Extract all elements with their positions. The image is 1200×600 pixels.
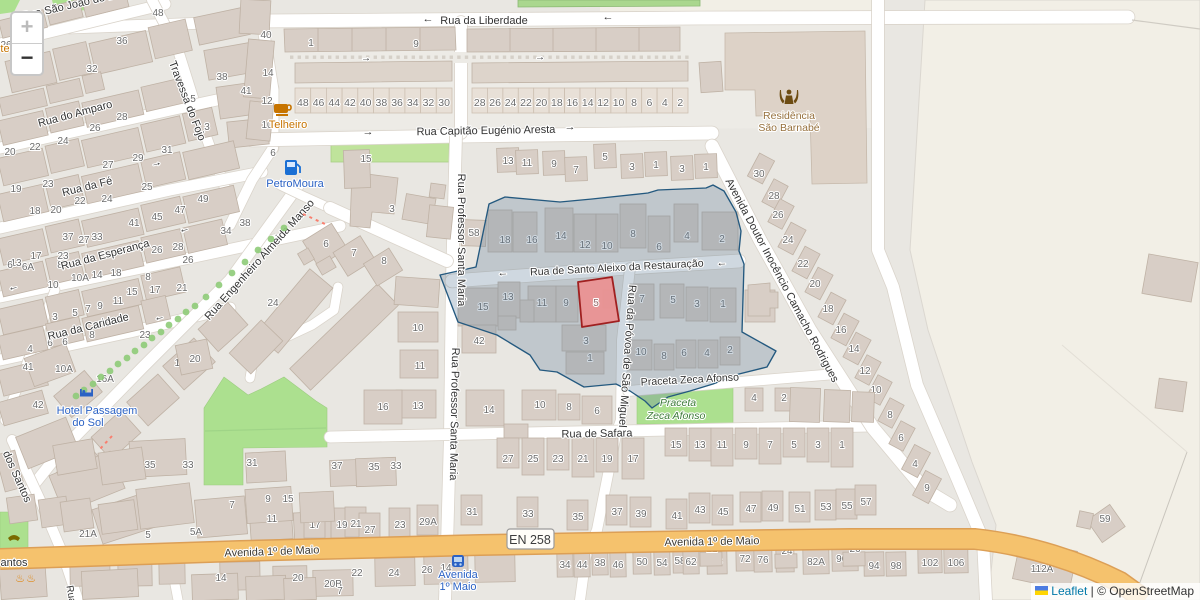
svg-text:te: te <box>0 43 9 55</box>
svg-text:29A: 29A <box>419 517 437 528</box>
svg-text:20: 20 <box>189 354 201 365</box>
svg-text:18: 18 <box>110 268 122 279</box>
svg-text:18: 18 <box>551 97 563 109</box>
svg-text:26: 26 <box>182 255 194 266</box>
svg-text:15: 15 <box>126 287 138 298</box>
svg-text:28: 28 <box>768 191 780 202</box>
svg-text:32: 32 <box>423 97 435 109</box>
svg-text:5: 5 <box>791 440 797 451</box>
svg-text:Praceta: Praceta <box>660 397 696 409</box>
svg-text:20: 20 <box>809 279 821 290</box>
svg-text:43: 43 <box>694 505 706 516</box>
svg-text:36: 36 <box>116 36 128 47</box>
svg-text:16: 16 <box>835 325 847 336</box>
svg-text:21: 21 <box>577 454 589 465</box>
svg-text:33: 33 <box>522 509 534 520</box>
svg-text:8: 8 <box>631 97 637 109</box>
svg-text:6: 6 <box>898 433 904 444</box>
svg-text:3: 3 <box>815 440 821 451</box>
svg-text:Telheiro: Telheiro <box>269 119 308 131</box>
svg-text:8: 8 <box>381 256 387 267</box>
svg-text:2: 2 <box>781 393 787 404</box>
svg-text:←: ← <box>423 13 434 25</box>
svg-text:44: 44 <box>576 560 588 571</box>
svg-text:53: 53 <box>820 502 832 513</box>
svg-text:11: 11 <box>415 361 426 372</box>
svg-text:33: 33 <box>182 460 194 471</box>
svg-text:48: 48 <box>152 8 164 19</box>
svg-text:47: 47 <box>745 504 757 515</box>
svg-text:11: 11 <box>267 514 278 525</box>
svg-text:5: 5 <box>593 298 599 309</box>
svg-text:38: 38 <box>216 72 228 83</box>
svg-text:5A: 5A <box>190 527 203 538</box>
svg-text:7: 7 <box>337 586 343 597</box>
svg-text:26: 26 <box>489 97 501 109</box>
svg-text:46: 46 <box>612 560 624 571</box>
svg-text:24: 24 <box>101 194 113 205</box>
svg-text:Rua Professor Santa Maria: Rua Professor Santa Maria <box>447 348 461 482</box>
svg-text:72: 72 <box>739 554 751 565</box>
svg-text:14: 14 <box>483 405 495 416</box>
svg-text:21: 21 <box>350 519 362 530</box>
svg-text:5: 5 <box>602 152 608 163</box>
svg-text:46: 46 <box>313 97 325 109</box>
svg-text:47: 47 <box>174 205 186 216</box>
svg-text:Rua: Rua <box>63 585 77 600</box>
svg-text:27: 27 <box>78 235 90 246</box>
svg-text:10: 10 <box>534 400 546 411</box>
svg-text:12: 12 <box>597 97 609 109</box>
svg-text:57: 57 <box>860 497 872 508</box>
svg-text:10A: 10A <box>71 273 89 284</box>
svg-text:10: 10 <box>47 280 59 291</box>
svg-text:24: 24 <box>782 235 794 246</box>
svg-text:2: 2 <box>677 97 683 109</box>
svg-text:7: 7 <box>573 165 579 176</box>
svg-text:11: 11 <box>522 158 533 169</box>
svg-text:13: 13 <box>412 401 424 412</box>
svg-text:25: 25 <box>141 182 153 193</box>
svg-text:49: 49 <box>197 194 209 205</box>
svg-text:4: 4 <box>27 344 33 355</box>
svg-text:28: 28 <box>116 112 128 123</box>
svg-text:106: 106 <box>948 558 965 569</box>
svg-text:18: 18 <box>822 304 834 315</box>
svg-text:4: 4 <box>751 393 757 404</box>
svg-text:22: 22 <box>351 568 363 579</box>
svg-text:1º Maio: 1º Maio <box>439 581 476 593</box>
svg-text:38: 38 <box>239 218 251 229</box>
svg-text:9: 9 <box>97 301 103 312</box>
svg-text:15: 15 <box>282 494 294 505</box>
svg-text:4: 4 <box>662 97 668 109</box>
svg-text:28: 28 <box>474 97 486 109</box>
svg-text:10A: 10A <box>55 364 73 375</box>
svg-text:16: 16 <box>566 97 578 109</box>
svg-text:20: 20 <box>536 97 548 109</box>
svg-text:9: 9 <box>551 159 557 170</box>
svg-text:33: 33 <box>91 232 103 243</box>
svg-text:♨: ♨ <box>26 573 36 585</box>
svg-text:8: 8 <box>566 402 572 413</box>
svg-text:36: 36 <box>391 97 403 109</box>
svg-text:26: 26 <box>772 210 784 221</box>
svg-text:37: 37 <box>62 232 74 243</box>
svg-text:35: 35 <box>368 462 380 473</box>
svg-text:3: 3 <box>52 312 58 323</box>
svg-text:14: 14 <box>262 68 274 79</box>
svg-text:40: 40 <box>360 97 372 109</box>
svg-text:9: 9 <box>413 39 419 50</box>
svg-text:14: 14 <box>582 97 594 109</box>
svg-text:27: 27 <box>502 454 514 465</box>
svg-text:7: 7 <box>229 500 235 511</box>
svg-text:20: 20 <box>292 573 304 584</box>
svg-text:Rua de Safara: Rua de Safara <box>561 427 633 440</box>
svg-text:41: 41 <box>22 362 34 373</box>
svg-text:26: 26 <box>89 123 101 134</box>
svg-text:23: 23 <box>552 454 564 465</box>
svg-text:13: 13 <box>694 440 706 451</box>
svg-text:11: 11 <box>717 440 728 451</box>
svg-text:EN 258: EN 258 <box>509 533 551 547</box>
svg-text:28: 28 <box>172 242 184 253</box>
svg-text:31: 31 <box>466 507 478 518</box>
svg-text:34: 34 <box>407 97 419 109</box>
svg-text:16: 16 <box>377 402 389 413</box>
svg-text:33: 33 <box>390 461 402 472</box>
svg-text:7: 7 <box>85 304 91 315</box>
svg-text:31: 31 <box>161 145 173 156</box>
svg-text:26: 26 <box>421 565 433 576</box>
svg-text:82A: 82A <box>807 557 825 568</box>
svg-text:25: 25 <box>527 454 539 465</box>
svg-text:31: 31 <box>246 458 258 469</box>
svg-text:22: 22 <box>74 196 86 207</box>
svg-text:24: 24 <box>57 136 69 147</box>
svg-text:←: ← <box>603 11 614 23</box>
svg-text:5: 5 <box>145 530 151 541</box>
svg-text:Residência: Residência <box>763 110 815 122</box>
svg-text:39: 39 <box>635 509 647 520</box>
svg-text:24: 24 <box>267 298 279 309</box>
svg-text:9: 9 <box>924 483 930 494</box>
svg-text:24: 24 <box>388 568 400 579</box>
svg-text:6: 6 <box>594 406 600 417</box>
svg-text:41: 41 <box>671 511 683 522</box>
svg-text:14: 14 <box>215 573 227 584</box>
svg-text:62: 62 <box>685 557 697 568</box>
svg-text:22: 22 <box>29 142 41 153</box>
svg-text:14: 14 <box>91 270 103 281</box>
svg-text:48: 48 <box>297 97 309 109</box>
svg-text:19: 19 <box>10 184 22 195</box>
svg-text:42: 42 <box>344 97 356 109</box>
svg-text:Hotel Passagem: Hotel Passagem <box>57 405 138 417</box>
svg-text:15: 15 <box>670 440 682 451</box>
svg-text:do Sol: do Sol <box>72 417 103 429</box>
svg-text:45: 45 <box>717 507 729 518</box>
svg-text:27: 27 <box>102 160 114 171</box>
svg-text:9: 9 <box>265 494 271 505</box>
svg-text:3: 3 <box>679 164 685 175</box>
svg-text:antos: antos <box>1 557 28 569</box>
svg-text:41: 41 <box>128 218 140 229</box>
svg-text:Zeca Afonso: Zeca Afonso <box>646 410 706 422</box>
svg-text:1: 1 <box>653 160 659 171</box>
svg-text:→: → <box>565 121 576 133</box>
svg-text:13: 13 <box>502 156 514 167</box>
svg-text:12: 12 <box>261 96 273 107</box>
svg-text:7: 7 <box>767 440 773 451</box>
svg-text:59: 59 <box>1099 514 1111 525</box>
svg-text:PetroMoura: PetroMoura <box>266 178 324 190</box>
svg-text:41: 41 <box>240 86 252 97</box>
svg-text:6: 6 <box>647 97 653 109</box>
svg-text:44: 44 <box>328 97 340 109</box>
svg-text:23: 23 <box>42 179 54 190</box>
svg-text:6: 6 <box>323 239 329 250</box>
svg-text:9: 9 <box>743 440 749 451</box>
svg-text:4: 4 <box>912 459 918 470</box>
svg-text:1: 1 <box>703 162 709 173</box>
svg-text:5: 5 <box>72 308 78 319</box>
svg-text:38: 38 <box>594 558 606 569</box>
svg-text:51: 51 <box>794 504 806 515</box>
svg-text:30: 30 <box>438 97 450 109</box>
svg-text:1: 1 <box>839 440 845 451</box>
svg-text:42: 42 <box>32 400 44 411</box>
svg-text:←: ← <box>497 267 509 280</box>
svg-text:50: 50 <box>636 557 648 568</box>
svg-text:6: 6 <box>7 260 13 271</box>
svg-text:Avenida: Avenida <box>438 569 478 581</box>
svg-text:Avenida 1º de Maio: Avenida 1º de Maio <box>664 535 759 549</box>
svg-text:54: 54 <box>656 558 668 569</box>
svg-text:17: 17 <box>149 285 161 296</box>
svg-text:19: 19 <box>601 454 613 465</box>
svg-text:38: 38 <box>376 97 388 109</box>
svg-text:19: 19 <box>336 520 348 531</box>
svg-text:1: 1 <box>308 38 314 49</box>
svg-text:37: 37 <box>611 507 623 518</box>
svg-text:São Barnabé: São Barnabé <box>758 122 819 134</box>
svg-text:22: 22 <box>520 97 532 109</box>
svg-text:Rua Capitão Eugénio Aresta: Rua Capitão Eugénio Aresta <box>416 124 556 138</box>
svg-text:24: 24 <box>505 97 517 109</box>
svg-text:98: 98 <box>890 561 902 572</box>
svg-text:21A: 21A <box>79 529 97 540</box>
svg-text:42: 42 <box>473 336 485 347</box>
svg-text:7: 7 <box>351 248 357 259</box>
svg-text:40: 40 <box>260 30 272 41</box>
svg-text:♨: ♨ <box>15 573 25 585</box>
svg-text:10: 10 <box>613 97 625 109</box>
svg-text:Rua da Liberdade: Rua da Liberdade <box>440 15 527 27</box>
svg-text:34: 34 <box>559 560 571 571</box>
svg-text:55: 55 <box>841 501 853 512</box>
svg-text:76: 76 <box>757 555 769 566</box>
svg-text:32: 32 <box>86 64 98 75</box>
svg-text:49: 49 <box>767 503 779 514</box>
svg-text:17: 17 <box>30 251 42 262</box>
svg-text:23: 23 <box>394 520 406 531</box>
svg-text:58: 58 <box>468 228 480 239</box>
svg-text:3: 3 <box>389 204 395 215</box>
svg-text:6: 6 <box>270 148 276 159</box>
svg-text:17: 17 <box>627 454 639 465</box>
svg-text:Rua Professor Santa Maria: Rua Professor Santa Maria <box>455 174 467 308</box>
svg-text:→: → <box>535 52 545 63</box>
svg-text:35: 35 <box>144 460 156 471</box>
svg-text:29: 29 <box>132 153 144 164</box>
svg-text:94: 94 <box>868 561 880 572</box>
svg-text:34: 34 <box>220 226 232 237</box>
svg-text:22: 22 <box>797 259 809 270</box>
svg-text:14: 14 <box>848 344 860 355</box>
svg-text:8: 8 <box>145 272 151 283</box>
svg-text:←: ← <box>716 257 728 270</box>
svg-text:10: 10 <box>412 323 424 334</box>
svg-text:8: 8 <box>887 410 893 421</box>
svg-text:37: 37 <box>331 461 343 472</box>
svg-text:18: 18 <box>29 206 41 217</box>
svg-text:21: 21 <box>176 283 188 294</box>
svg-text:20: 20 <box>50 205 62 216</box>
svg-text:30: 30 <box>753 169 765 180</box>
svg-text:→: → <box>363 126 374 138</box>
svg-text:6A: 6A <box>22 262 35 273</box>
svg-text:102: 102 <box>922 558 939 569</box>
svg-text:3: 3 <box>629 162 635 173</box>
svg-text:35: 35 <box>572 512 584 523</box>
svg-text:12: 12 <box>859 366 871 377</box>
svg-text:11: 11 <box>113 296 124 307</box>
svg-text:45: 45 <box>151 212 163 223</box>
svg-text:20: 20 <box>4 147 16 158</box>
svg-text:27: 27 <box>364 525 376 536</box>
svg-text:26: 26 <box>151 245 163 256</box>
svg-text:15: 15 <box>360 154 372 165</box>
